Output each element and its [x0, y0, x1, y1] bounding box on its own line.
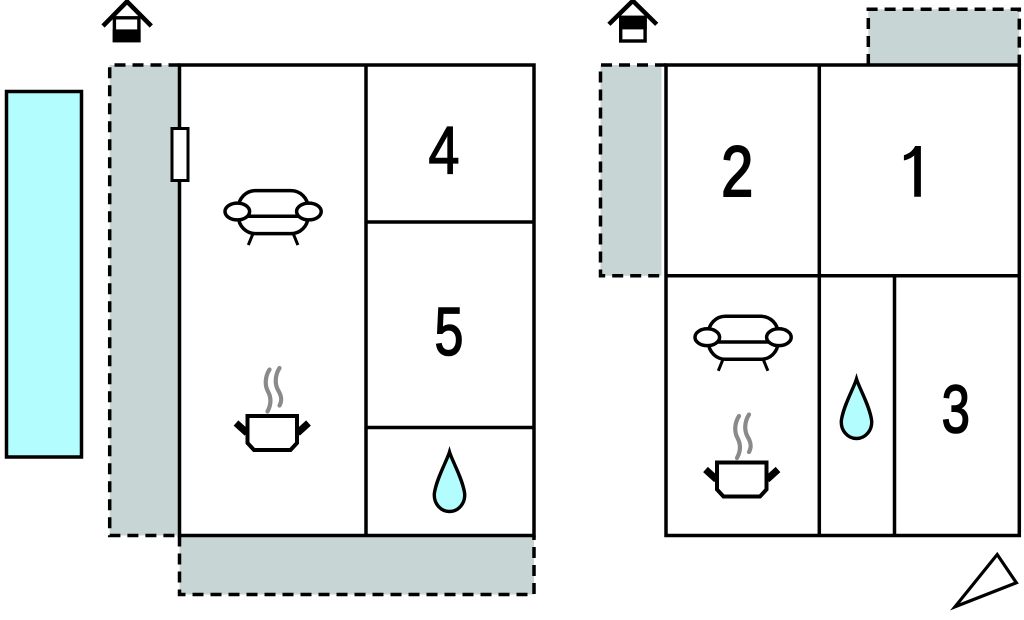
svg-text:3: 3	[942, 372, 970, 448]
svg-text:2: 2	[721, 132, 753, 211]
svg-text:5: 5	[435, 293, 464, 369]
svg-text:4: 4	[428, 114, 459, 189]
